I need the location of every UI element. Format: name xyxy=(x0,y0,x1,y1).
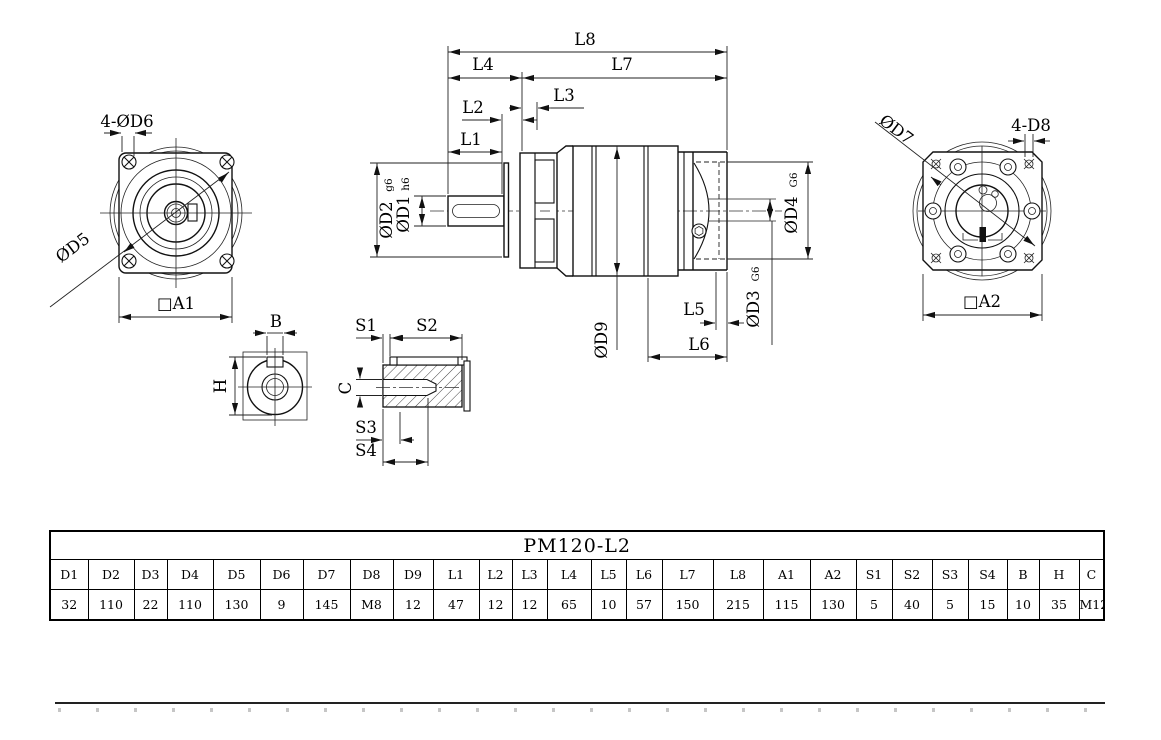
header-cell: A2 xyxy=(810,560,856,590)
value-cell: 110 xyxy=(88,590,134,621)
dim-d4: ØD4 xyxy=(782,196,801,233)
value-cell: M8 xyxy=(350,590,393,621)
value-cell: 47 xyxy=(433,590,479,621)
header-cell: D2 xyxy=(88,560,134,590)
front-bolt-circle-label: ØD5 xyxy=(52,229,93,267)
value-cell: 12 xyxy=(479,590,512,621)
side-view: L8 L4 L7 L3 L2 L1 ØD1 h6 xyxy=(370,30,813,362)
header-cell: L7 xyxy=(662,560,713,590)
value-cell: 12 xyxy=(393,590,433,621)
dim-d1: ØD1 xyxy=(394,195,413,232)
front-square-label: □A1 xyxy=(157,294,195,313)
section-height-label: H xyxy=(211,379,230,393)
key-detail-view: S1 S2 C S3 S4 xyxy=(336,316,470,466)
dim-l1: L1 xyxy=(460,130,481,149)
value-cell: 215 xyxy=(713,590,763,621)
dim-l2: L2 xyxy=(462,98,483,117)
dim-l5: L5 xyxy=(683,300,704,319)
header-cell: A1 xyxy=(763,560,810,590)
dim-l3: L3 xyxy=(553,86,574,105)
dimension-table: PM120-L2 D1 D2 D3 D4 D5 D6 D7 D8 D9 L1 L… xyxy=(49,530,1105,621)
shaft-section-view: B H xyxy=(211,312,312,426)
value-cell: 9 xyxy=(260,590,303,621)
value-cell: 115 xyxy=(763,590,810,621)
table-title-row: PM120-L2 xyxy=(50,531,1104,560)
value-cell: 10 xyxy=(591,590,626,621)
value-cell: 145 xyxy=(303,590,350,621)
header-cell: L3 xyxy=(512,560,547,590)
dim-l6: L6 xyxy=(688,335,709,354)
dim-d4-tolerance: G6 xyxy=(788,172,800,187)
key-s3-label: S3 xyxy=(355,418,377,437)
value-cell: 110 xyxy=(167,590,213,621)
back-bolt-circle-label: ØD7 xyxy=(876,111,917,149)
header-cell: L6 xyxy=(626,560,662,590)
header-cell: S4 xyxy=(968,560,1007,590)
header-cell: L8 xyxy=(713,560,763,590)
header-cell: C xyxy=(1079,560,1104,590)
header-cell: S3 xyxy=(932,560,968,590)
front-bolt-holes-label: 4-ØD6 xyxy=(100,112,153,131)
table-title: PM120-L2 xyxy=(50,531,1104,560)
header-cell: D3 xyxy=(134,560,167,590)
value-cell: 5 xyxy=(932,590,968,621)
header-cell: L5 xyxy=(591,560,626,590)
dim-d1-tolerance: h6 xyxy=(400,177,412,191)
front-view: 4-ØD6 ØD5 □A1 xyxy=(50,112,252,323)
header-cell: S1 xyxy=(856,560,892,590)
header-cell: D6 xyxy=(260,560,303,590)
header-cell: L4 xyxy=(547,560,591,590)
key-c-label: C xyxy=(336,382,355,395)
header-cell: H xyxy=(1039,560,1079,590)
footer-rule xyxy=(55,702,1105,704)
value-cell: 57 xyxy=(626,590,662,621)
dim-l4: L4 xyxy=(472,55,493,74)
table-header-row: D1 D2 D3 D4 D5 D6 D7 D8 D9 L1 L2 L3 L4 L… xyxy=(50,560,1104,590)
header-cell: D9 xyxy=(393,560,433,590)
header-cell: D4 xyxy=(167,560,213,590)
value-cell: 150 xyxy=(662,590,713,621)
header-cell: S2 xyxy=(892,560,932,590)
dim-l8: L8 xyxy=(574,30,595,49)
value-cell: 35 xyxy=(1039,590,1079,621)
gearbox-drawing: 4-ØD6 ØD5 □A1 B H xyxy=(0,0,1161,525)
value-cell: 22 xyxy=(134,590,167,621)
header-cell: D8 xyxy=(350,560,393,590)
key-s1-label: S1 xyxy=(355,316,377,335)
value-cell: 15 xyxy=(968,590,1007,621)
dim-d2: ØD2 xyxy=(377,201,396,238)
dim-l7: L7 xyxy=(611,55,632,74)
dim-d3-tolerance: G6 xyxy=(750,266,762,281)
dim-d9: ØD9 xyxy=(592,321,611,358)
key-s4-label: S4 xyxy=(355,441,377,460)
back-view: ØD7 4-D8 □A2 xyxy=(875,111,1051,321)
header-cell: D1 xyxy=(50,560,88,590)
dim-d2-tolerance: g6 xyxy=(383,178,395,192)
section-width-label: B xyxy=(270,312,282,331)
dim-d3: ØD3 xyxy=(744,290,763,327)
key-s2-label: S2 xyxy=(416,316,438,335)
value-cell: 40 xyxy=(892,590,932,621)
header-cell: B xyxy=(1007,560,1039,590)
header-cell: D5 xyxy=(213,560,260,590)
drawing-canvas: 4-ØD6 ØD5 □A1 B H xyxy=(0,0,1161,740)
header-cell: L2 xyxy=(479,560,512,590)
header-cell: D7 xyxy=(303,560,350,590)
value-cell: 5 xyxy=(856,590,892,621)
value-cell: 12 xyxy=(512,590,547,621)
value-cell: 65 xyxy=(547,590,591,621)
value-cell: 32 xyxy=(50,590,88,621)
back-tap-holes-label: 4-D8 xyxy=(1011,116,1051,135)
value-cell: M12 xyxy=(1079,590,1104,621)
value-cell: 10 xyxy=(1007,590,1039,621)
value-cell: 130 xyxy=(810,590,856,621)
header-cell: L1 xyxy=(433,560,479,590)
back-square-label: □A2 xyxy=(963,292,1001,311)
value-cell: 130 xyxy=(213,590,260,621)
table-value-row: 32 110 22 110 130 9 145 M8 12 47 12 12 6… xyxy=(50,590,1104,621)
footer-cropped-row xyxy=(58,708,1102,712)
